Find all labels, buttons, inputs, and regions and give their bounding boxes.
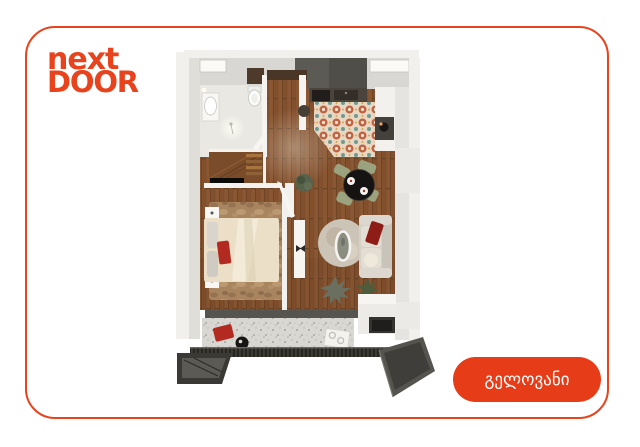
sofa: [359, 215, 392, 278]
bed: [204, 218, 279, 282]
balcony-tray: [324, 328, 350, 348]
pouf-dark: [298, 105, 310, 117]
sofa-pillow-round: [364, 253, 378, 267]
wall-pillar-bottom: [395, 302, 420, 329]
logo-text-door: DOOR: [47, 71, 138, 94]
plant-pouf: [295, 174, 313, 192]
page: next DOOR: [0, 0, 640, 447]
window-top-right: [370, 60, 409, 72]
listing-card: next DOOR: [25, 26, 609, 419]
window-top-left: [200, 60, 226, 72]
wall-pillar-top: [395, 148, 420, 193]
balcony-bench: [358, 294, 396, 334]
bathroom: [200, 75, 267, 157]
detached-panel: [379, 337, 435, 397]
nextdoor-logo: next DOOR: [47, 48, 138, 94]
project-name-button[interactable]: გელოვანი: [453, 357, 601, 402]
floorplan-image: [174, 38, 450, 404]
stairs: [209, 149, 266, 186]
lower-balcony-slab: [177, 353, 232, 384]
toilet: [248, 86, 261, 106]
